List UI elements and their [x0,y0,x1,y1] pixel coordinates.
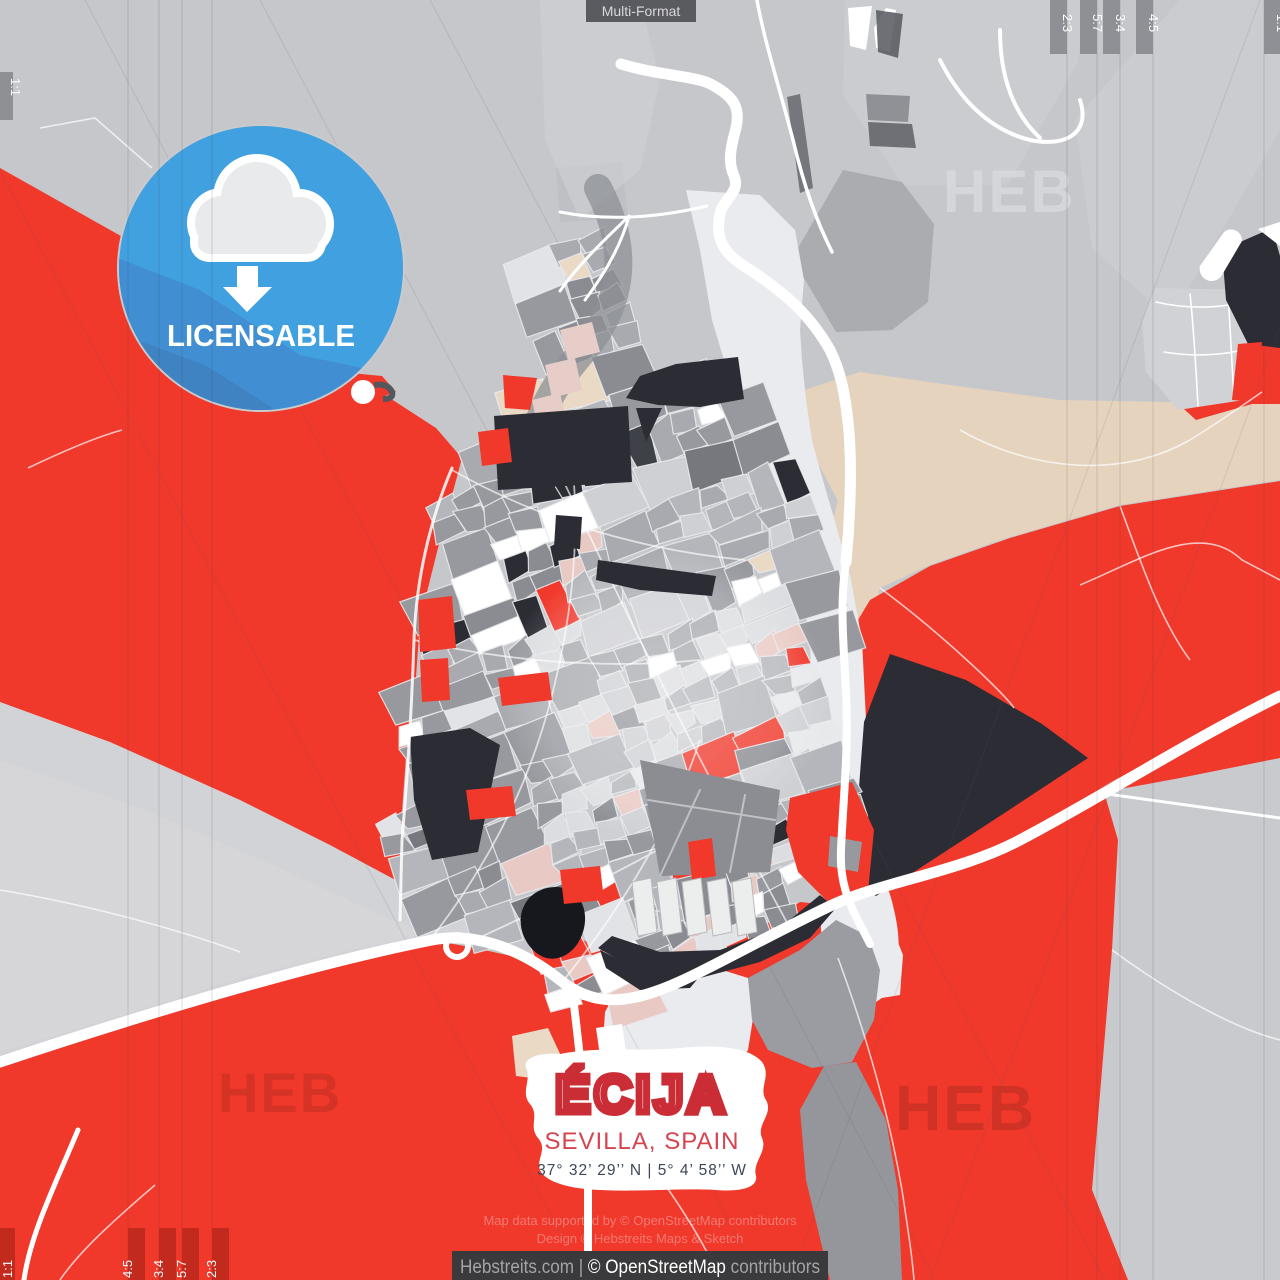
svg-text:Design © Hebstreits Maps & Ske: Design © Hebstreits Maps & Sketch [537,1231,744,1246]
svg-text:2:3: 2:3 [204,1260,219,1278]
svg-text:ÉCIJA: ÉCIJA [555,1066,728,1124]
svg-text:1:1: 1:1 [1274,14,1280,32]
svg-text:2:3: 2:3 [1060,14,1075,32]
svg-text:4:5: 4:5 [120,1260,135,1278]
svg-text:HEB: HEB [943,158,1076,225]
svg-text:37° 32’ 29’’ N | 5° 4’ 5: 37° 32’ 29’’ N | 5° 4’ 58’’ W [537,1162,747,1179]
svg-text:5:7: 5:7 [1090,14,1105,32]
svg-text:HEB: HEB [895,1072,1036,1144]
svg-text:3:4: 3:4 [151,1260,166,1278]
svg-text:Multi-Format: Multi-Format [602,3,681,19]
svg-text:5:7: 5:7 [174,1260,189,1278]
svg-text:SEVILLA, SPAIN: SEVILLA, SPAIN [545,1128,740,1155]
svg-text:1:1: 1:1 [8,78,23,96]
svg-text:4:5: 4:5 [1146,14,1161,32]
svg-text:HEB: HEB [218,1061,342,1124]
svg-text:Hebstreits.com | © OpenStreetM: Hebstreits.com | © OpenStreetMap contrib… [460,1257,820,1278]
svg-text:1:1: 1:1 [0,1260,15,1278]
svg-text:LICENSABLE: LICENSABLE [167,318,355,353]
svg-text:3:4: 3:4 [1113,14,1128,32]
svg-text:Map data supported by © OpenSt: Map data supported by © OpenStreetMap co… [483,1213,797,1228]
